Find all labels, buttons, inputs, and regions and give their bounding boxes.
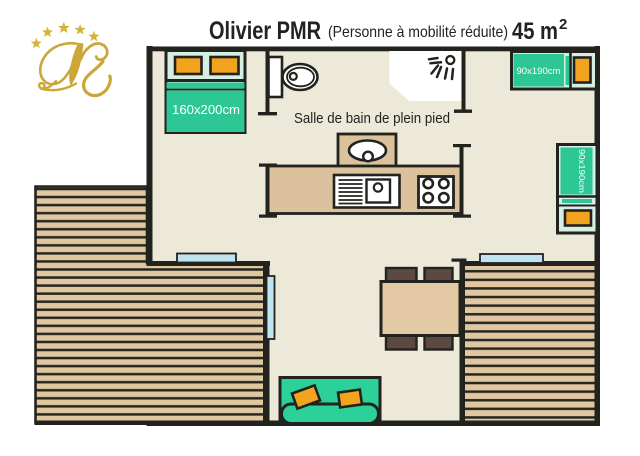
svg-text:90x190cm: 90x190cm <box>517 66 561 76</box>
svg-text:(Personne à mobilité réduite): (Personne à mobilité réduite) <box>328 24 508 41</box>
svg-text:160x200cm: 160x200cm <box>172 102 240 117</box>
svg-text:Olivier PMR: Olivier PMR <box>209 17 321 45</box>
svg-text:2: 2 <box>559 16 567 33</box>
svg-text:45 m: 45 m <box>512 18 558 45</box>
svg-text:Salle de bain de plein pied: Salle de bain de plein pied <box>294 110 450 127</box>
svg-text:90x190cm: 90x190cm <box>577 149 587 193</box>
